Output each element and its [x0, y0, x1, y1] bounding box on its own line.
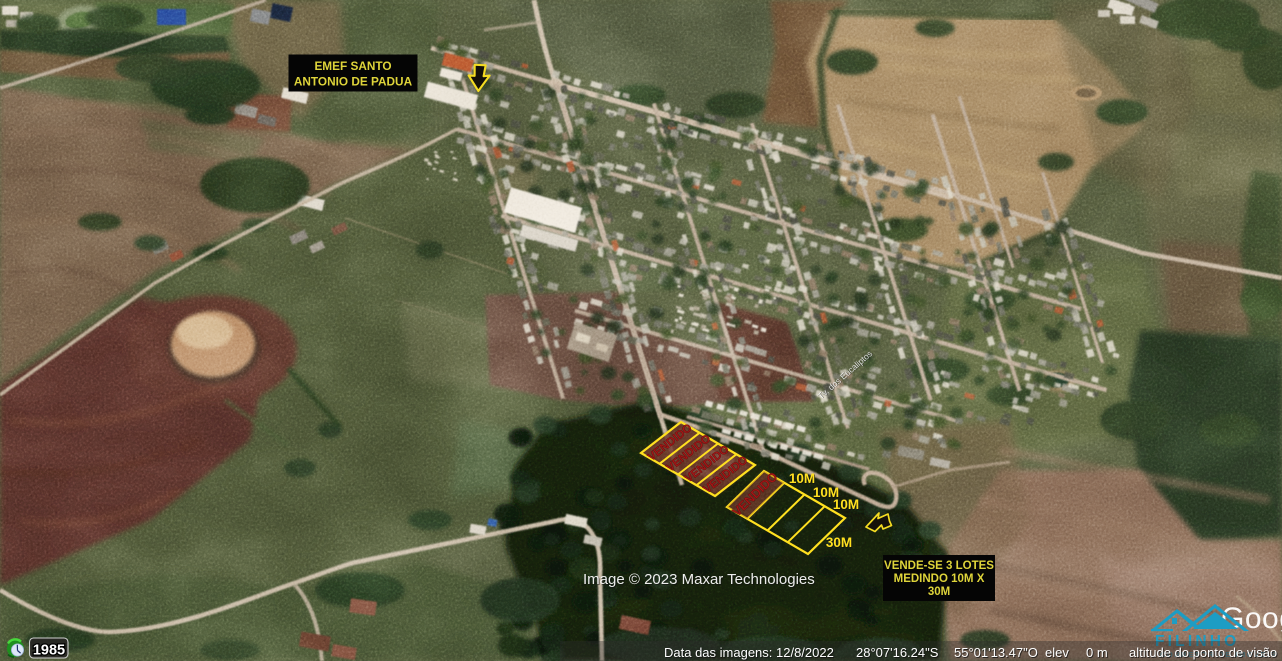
svg-text:EMEF SANTO: EMEF SANTO [314, 59, 391, 73]
svg-text:1985: 1985 [33, 643, 65, 659]
svg-text:Data das imagens: 12/8/2022: Data das imagens: 12/8/2022 [664, 645, 834, 660]
svg-text:VENDE-SE 3 LOTES: VENDE-SE 3 LOTES [884, 560, 994, 572]
svg-text:28°07'16.24"S: 28°07'16.24"S [856, 645, 939, 660]
svg-text:10M: 10M [789, 471, 815, 486]
svg-text:55°01'13.47"O: 55°01'13.47"O [954, 645, 1038, 660]
svg-text:elev: elev [1045, 645, 1069, 660]
svg-text:30M: 30M [928, 586, 950, 598]
svg-text:10M: 10M [833, 497, 859, 512]
svg-text:0 m: 0 m [1086, 645, 1108, 660]
svg-text:altitude do ponto de visão: altitude do ponto de visão [1129, 645, 1277, 660]
svg-text:Image © 2023 Maxar Technologie: Image © 2023 Maxar Technologies [583, 571, 815, 588]
svg-text:30M: 30M [826, 535, 852, 550]
svg-text:ANTONIO DE PADUA: ANTONIO DE PADUA [294, 75, 413, 89]
svg-text:MEDINDO 10M X: MEDINDO 10M X [894, 573, 985, 585]
